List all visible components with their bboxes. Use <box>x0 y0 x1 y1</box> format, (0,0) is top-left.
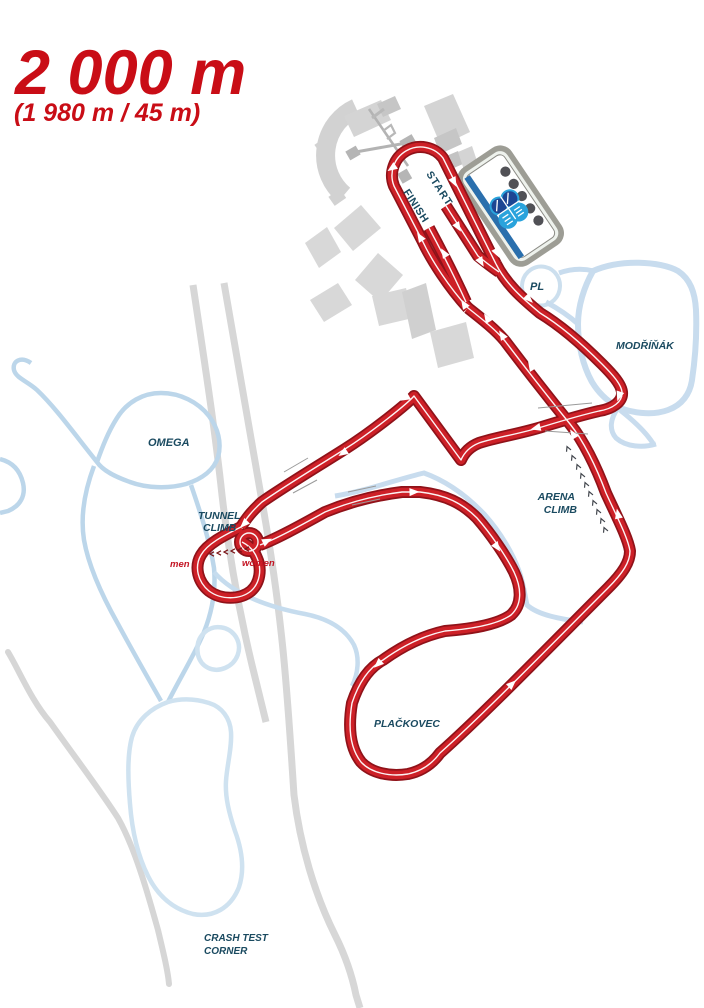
svg-text:CORNER: CORNER <box>204 946 248 957</box>
svg-text:PL: PL <box>530 281 544 293</box>
svg-text:(1 980 m / 45 m): (1 980 m / 45 m) <box>14 99 200 127</box>
svg-text:CLIMB: CLIMB <box>544 504 578 516</box>
svg-text:CLIMB: CLIMB <box>203 522 237 534</box>
svg-text:MODŘÍŇÁK: MODŘÍŇÁK <box>616 339 675 352</box>
svg-text:men: men <box>170 559 190 570</box>
svg-text:2 000 m: 2 000 m <box>14 38 246 108</box>
svg-text:TUNNEL: TUNNEL <box>198 510 241 522</box>
svg-text:OMEGA: OMEGA <box>148 437 190 449</box>
svg-text:women: women <box>242 558 275 569</box>
svg-text:ARENA: ARENA <box>537 491 575 503</box>
svg-text:CRASH TEST: CRASH TEST <box>204 933 269 944</box>
svg-text:PLAČKOVEC: PLAČKOVEC <box>374 717 440 730</box>
